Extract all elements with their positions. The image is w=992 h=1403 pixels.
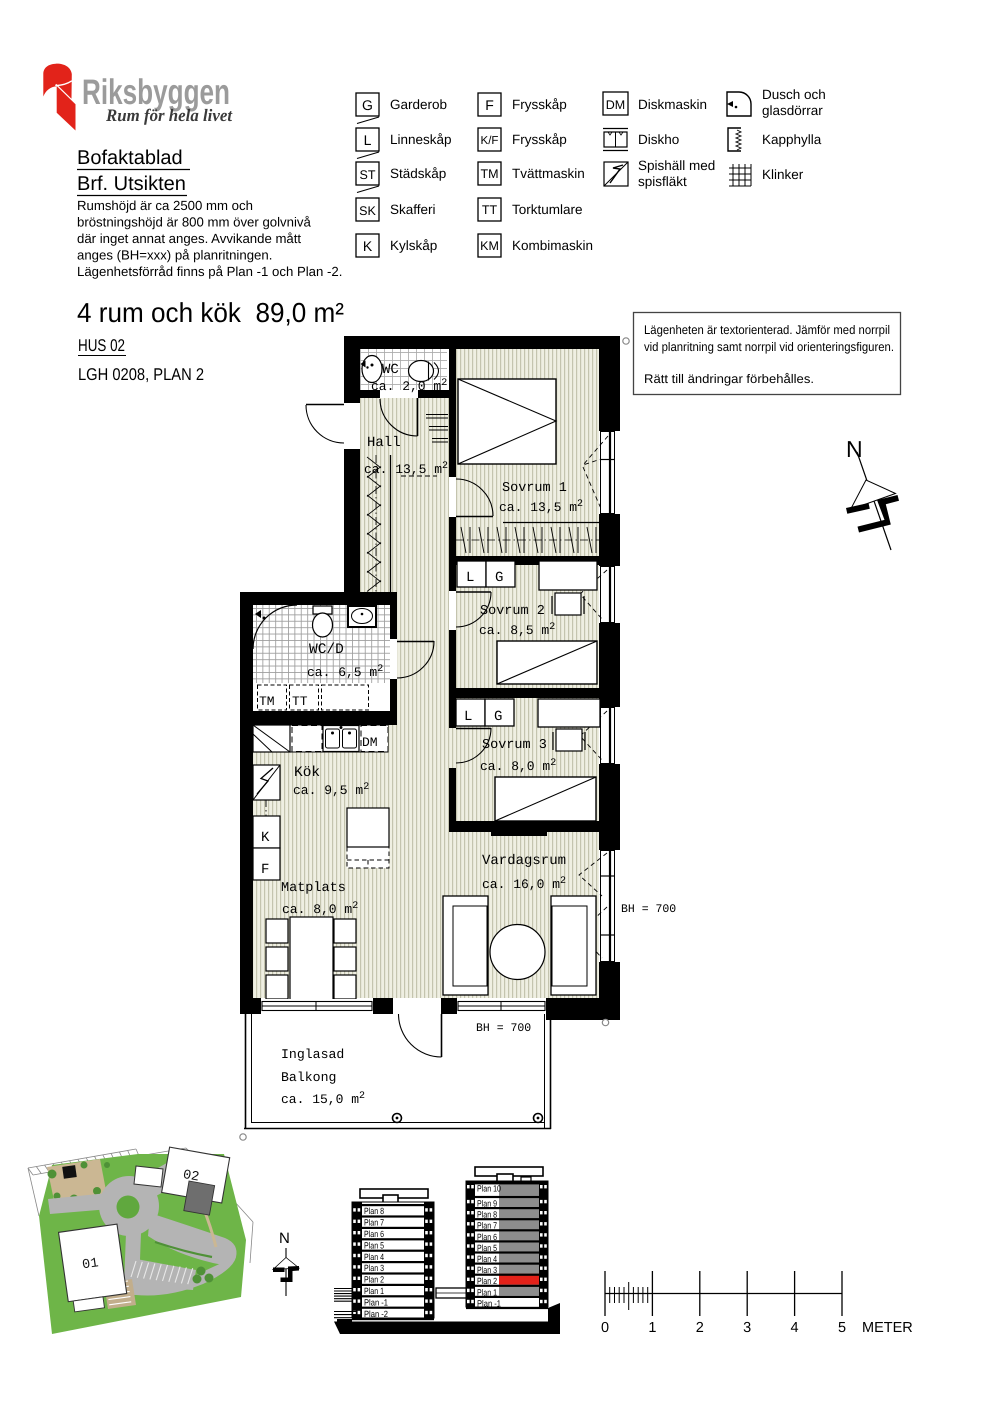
svg-text:Rum för hela livet: Rum för hela livet xyxy=(105,105,233,125)
svg-text:F: F xyxy=(261,862,269,878)
svg-text:5: 5 xyxy=(838,1320,846,1336)
svg-text:Bofaktablad: Bofaktablad xyxy=(77,147,183,169)
svg-text:Städskåp: Städskåp xyxy=(390,166,446,181)
svg-text:Balkong: Balkong xyxy=(281,1070,336,1085)
svg-text:Hall: Hall xyxy=(367,435,401,451)
svg-text:ca. 9,5 m2: ca. 9,5 m2 xyxy=(293,782,369,798)
svg-text:F: F xyxy=(485,97,494,113)
svg-text:Lägenheten är textorienterad.: Lägenheten är textorienterad. Jämför med… xyxy=(644,323,890,337)
svg-text:Diskho: Diskho xyxy=(638,132,679,147)
svg-text:1: 1 xyxy=(648,1320,656,1336)
svg-text:SK: SK xyxy=(359,204,376,218)
svg-text:Plan 1: Plan 1 xyxy=(477,1287,497,1297)
svg-text:Plan 9: Plan 9 xyxy=(477,1199,497,1209)
svg-text:bröstningshöjd är 800 mm över: bröstningshöjd är 800 mm över golvnivå xyxy=(77,215,311,230)
svg-text:0: 0 xyxy=(601,1320,609,1336)
svg-text:Plan 6: Plan 6 xyxy=(364,1229,384,1239)
svg-text:ca. 6,5 m2: ca. 6,5 m2 xyxy=(307,664,383,680)
svg-text:TT: TT xyxy=(292,694,308,709)
svg-text:K: K xyxy=(261,830,270,846)
svg-text:TM: TM xyxy=(259,694,275,709)
svg-text:Plan 5: Plan 5 xyxy=(364,1240,384,1250)
svg-text:Plan -1: Plan -1 xyxy=(364,1297,388,1307)
svg-text:Plan 2: Plan 2 xyxy=(477,1276,497,1286)
svg-text:LGH 0208, PLAN 2: LGH 0208, PLAN 2 xyxy=(78,365,204,384)
svg-text:Matplats: Matplats xyxy=(281,881,346,896)
svg-text:ca. 8,0 m2: ca. 8,0 m2 xyxy=(282,901,358,917)
svg-text:Kylskåp: Kylskåp xyxy=(390,238,437,253)
svg-text:ST: ST xyxy=(360,168,376,182)
svg-text:KM: KM xyxy=(480,239,499,253)
svg-text:L: L xyxy=(364,132,372,148)
svg-text:Frysskåp: Frysskåp xyxy=(512,132,567,147)
svg-text:L: L xyxy=(466,570,474,586)
svg-text:Plan 2: Plan 2 xyxy=(364,1275,384,1285)
svg-text:K/F: K/F xyxy=(481,135,499,147)
svg-text:4 rum och kök 89,0 m²: 4 rum och kök 89,0 m² xyxy=(77,297,344,328)
svg-text:Plan 8: Plan 8 xyxy=(364,1206,384,1216)
svg-text:Tvättmaskin: Tvättmaskin xyxy=(512,166,585,181)
svg-text:vid planritning samt norrpil v: vid planritning samt norrpil vid oriente… xyxy=(644,340,894,354)
svg-text:spisfläkt: spisfläkt xyxy=(638,174,687,189)
svg-text:4: 4 xyxy=(791,1320,799,1336)
svg-text:ca. 8,5 m2: ca. 8,5 m2 xyxy=(479,622,555,638)
svg-text:G: G xyxy=(494,709,502,725)
svg-text:WC/D: WC/D xyxy=(309,642,344,658)
svg-text:Plan 10: Plan 10 xyxy=(477,1184,501,1194)
svg-text:Dusch och: Dusch och xyxy=(762,87,826,102)
svg-text:Plan 3: Plan 3 xyxy=(477,1265,497,1275)
svg-text:där inget annat anges. Avvikan: där inget annat anges. Avvikande mått xyxy=(77,231,301,246)
svg-text:Plan 7: Plan 7 xyxy=(364,1218,384,1228)
svg-text:N: N xyxy=(279,1230,290,1247)
svg-text:Diskmaskin: Diskmaskin xyxy=(638,97,707,112)
svg-text:G: G xyxy=(495,570,503,586)
svg-text:glasdörrar: glasdörrar xyxy=(762,103,823,118)
svg-text:ca. 13,5 m2: ca. 13,5 m2 xyxy=(364,461,448,477)
svg-text:Kombimaskin: Kombimaskin xyxy=(512,238,593,253)
svg-text:ca. 2,0 m2: ca. 2,0 m2 xyxy=(371,378,447,394)
svg-text:WC: WC xyxy=(382,362,399,378)
svg-text:METER: METER xyxy=(862,1320,913,1336)
svg-text:Plan 8: Plan 8 xyxy=(477,1210,497,1220)
svg-text:Spishäll med: Spishäll med xyxy=(638,158,715,173)
svg-text:HUS 02: HUS 02 xyxy=(78,336,125,355)
svg-text:Plan -2: Plan -2 xyxy=(364,1309,388,1319)
svg-text:Lägenhetsförråd finns på Plan: Lägenhetsförråd finns på Plan -1 och Pla… xyxy=(77,264,342,279)
svg-text:BH = 700: BH = 700 xyxy=(476,1022,531,1035)
svg-text:N: N xyxy=(846,436,863,462)
svg-text:BH = 700: BH = 700 xyxy=(621,903,676,916)
svg-text:Plan 3: Plan 3 xyxy=(364,1263,384,1273)
svg-text:Sovrum 3: Sovrum 3 xyxy=(482,738,547,753)
svg-text:ca. 8,0 m2: ca. 8,0 m2 xyxy=(480,758,556,774)
svg-text:Plan 6: Plan 6 xyxy=(477,1232,497,1242)
svg-text:L: L xyxy=(464,709,472,725)
svg-text:Klinker: Klinker xyxy=(762,167,804,182)
svg-text:Kök: Kök xyxy=(294,765,320,781)
svg-text:Rätt till ändringar förbehålle: Rätt till ändringar förbehålles. xyxy=(644,372,814,386)
svg-text:2: 2 xyxy=(696,1320,704,1336)
svg-text:3: 3 xyxy=(743,1320,751,1336)
svg-text:TT: TT xyxy=(482,203,498,217)
svg-text:02: 02 xyxy=(182,1168,201,1186)
svg-text:DM: DM xyxy=(606,98,625,112)
svg-text:Vardagsrum: Vardagsrum xyxy=(482,853,566,869)
svg-text:ca. 16,0 m2: ca. 16,0 m2 xyxy=(482,876,566,892)
svg-text:Plan 4: Plan 4 xyxy=(364,1252,384,1262)
svg-text:Plan 5: Plan 5 xyxy=(477,1243,497,1253)
svg-text:K: K xyxy=(363,238,373,254)
svg-text:Garderob: Garderob xyxy=(390,97,447,112)
svg-text:G: G xyxy=(362,97,373,113)
svg-text:Sovrum 2: Sovrum 2 xyxy=(480,604,545,619)
svg-text:Plan 4: Plan 4 xyxy=(477,1254,497,1264)
svg-text:Linneskåp: Linneskåp xyxy=(390,132,452,147)
svg-text:Frysskåp: Frysskåp xyxy=(512,97,567,112)
svg-text:ca. 13,5 m2: ca. 13,5 m2 xyxy=(499,499,583,515)
svg-text:Plan 7: Plan 7 xyxy=(477,1221,497,1231)
svg-text:Brf. Utsikten: Brf. Utsikten xyxy=(77,173,186,195)
svg-text:Skafferi: Skafferi xyxy=(390,202,436,217)
svg-text:Plan 1: Plan 1 xyxy=(364,1286,384,1296)
svg-text:Torktumlare: Torktumlare xyxy=(512,202,583,217)
svg-text:Kapphylla: Kapphylla xyxy=(762,132,822,147)
svg-text:Sovrum 1: Sovrum 1 xyxy=(502,481,567,496)
svg-text:Inglasad: Inglasad xyxy=(281,1047,344,1062)
svg-text:01: 01 xyxy=(81,1256,99,1273)
svg-text:TM: TM xyxy=(480,167,498,181)
svg-text:anges (BH=xxx) på planritninge: anges (BH=xxx) på planritningen. xyxy=(77,248,272,263)
svg-text:DM: DM xyxy=(362,735,378,750)
svg-text:ca. 15,0 m2: ca. 15,0 m2 xyxy=(281,1091,365,1107)
svg-text:Rumshöjd är ca 2500 mm och: Rumshöjd är ca 2500 mm och xyxy=(77,198,253,213)
svg-text:Plan -1: Plan -1 xyxy=(477,1298,501,1308)
